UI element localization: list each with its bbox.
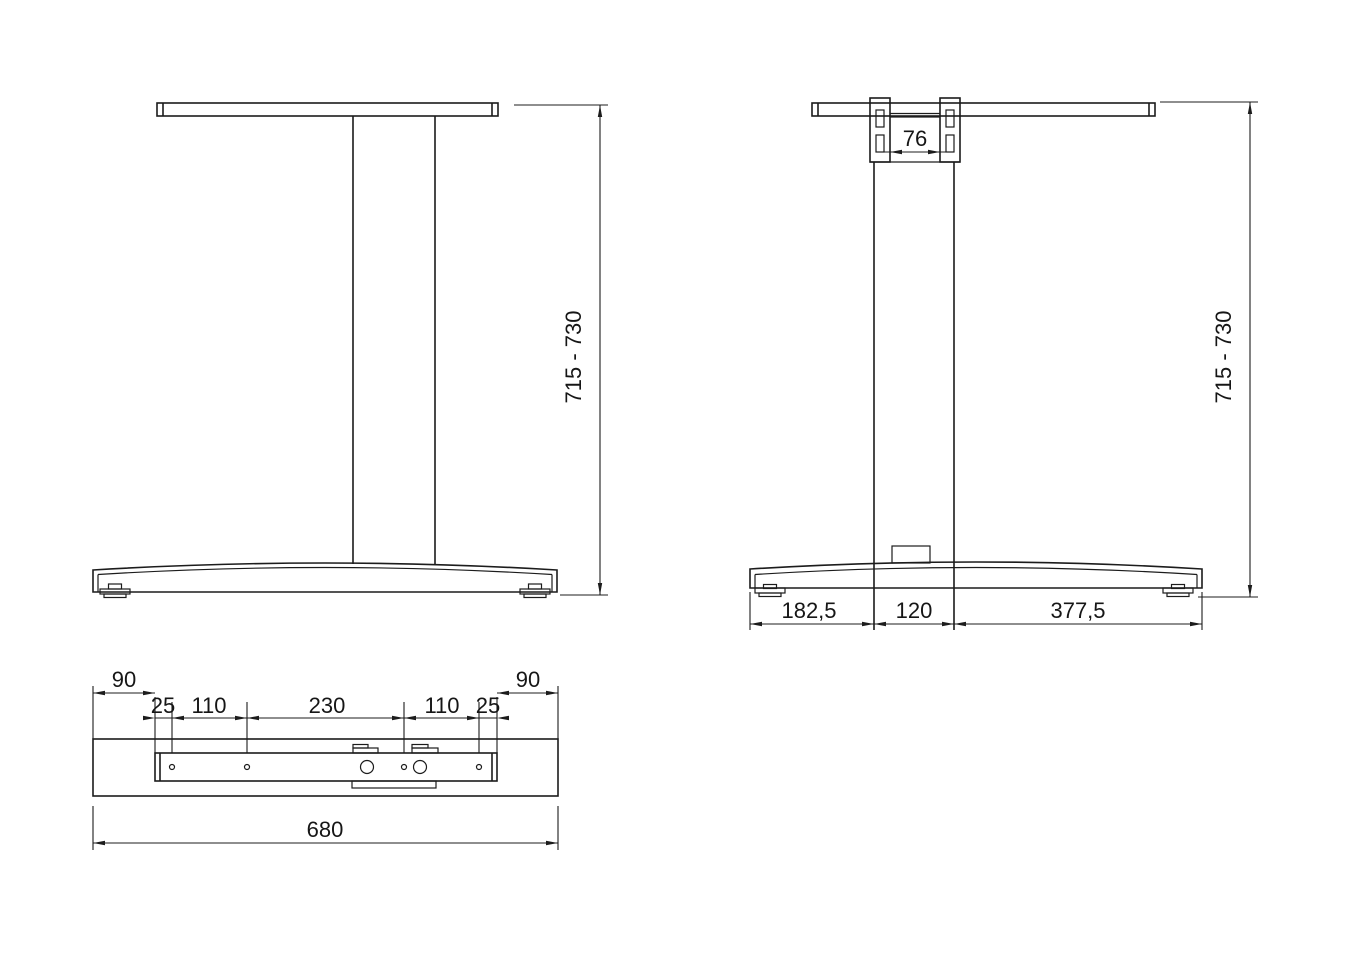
side-foot-rear bbox=[1163, 585, 1193, 597]
side-base-inner-lip bbox=[755, 568, 1197, 589]
side-base-dimensions: 182,5 120 377,5 bbox=[750, 592, 1202, 630]
side-bracket-slot bbox=[876, 110, 884, 127]
top-base-outline bbox=[93, 739, 558, 796]
side-bracket-dimension: 76 bbox=[881, 126, 949, 154]
large-hole bbox=[414, 761, 427, 774]
screw-hole bbox=[402, 765, 407, 770]
front-view: 715 - 730 bbox=[93, 103, 608, 598]
screw-hole bbox=[245, 765, 250, 770]
side-foot-front-label: 182,5 bbox=[781, 598, 836, 623]
screw-hole bbox=[170, 765, 175, 770]
top-chain-label-5: 25 bbox=[476, 693, 500, 718]
top-plate-endcaps bbox=[160, 753, 492, 781]
side-bracket-slot bbox=[876, 135, 884, 152]
side-bracket-slot bbox=[946, 110, 954, 127]
top-chain-label-4: 110 bbox=[424, 693, 459, 718]
screw-hole bbox=[477, 765, 482, 770]
top-dim-overall: 680 bbox=[93, 806, 558, 850]
side-bracket-slot bbox=[946, 135, 954, 152]
technical-drawing-page: 715 - 730 76 bbox=[0, 0, 1354, 956]
front-base-inner-lip bbox=[98, 568, 552, 593]
top-dim-left-90: 90 bbox=[93, 667, 155, 753]
top-plate-bar bbox=[155, 753, 497, 781]
front-top-plate-endcaps bbox=[163, 103, 492, 116]
side-top-plate bbox=[812, 103, 1155, 116]
side-foot-front bbox=[755, 585, 785, 597]
side-base bbox=[750, 562, 1202, 588]
top-chain-label-3: 230 bbox=[309, 693, 346, 718]
side-column-base-clip bbox=[892, 546, 930, 563]
side-view: 76 182,5 120 377,5 bbox=[750, 98, 1258, 630]
top-plate-holes bbox=[170, 761, 482, 774]
top-chain-label-1: 25 bbox=[151, 693, 175, 718]
top-chain-label-2: 110 bbox=[191, 693, 226, 718]
top-bracket-tabs bbox=[352, 745, 438, 789]
top-view: 90 90 25 110 230 110 25 bbox=[93, 667, 558, 850]
top-dim-chain: 25 110 230 110 25 bbox=[143, 693, 509, 753]
table-leg-drawing: 715 - 730 76 bbox=[0, 0, 1354, 956]
top-overhang-right-label: 90 bbox=[516, 667, 540, 692]
front-height-label: 715 - 730 bbox=[561, 311, 586, 404]
front-foot-right bbox=[520, 584, 550, 598]
top-dim-right-90: 90 bbox=[497, 667, 558, 753]
top-overall-length-label: 680 bbox=[307, 817, 344, 842]
side-foot-rear-label: 377,5 bbox=[1050, 598, 1105, 623]
front-column bbox=[353, 116, 435, 564]
top-overhang-left-label: 90 bbox=[112, 667, 136, 692]
front-foot-left bbox=[100, 584, 130, 598]
side-column-depth-label: 120 bbox=[896, 598, 933, 623]
side-top-plate-endcaps bbox=[818, 103, 1149, 116]
front-top-plate bbox=[157, 103, 498, 116]
side-height-label: 715 - 730 bbox=[1211, 311, 1236, 404]
large-hole bbox=[361, 761, 374, 774]
side-height-dimension: 715 - 730 bbox=[1160, 102, 1258, 597]
front-height-dimension: 715 - 730 bbox=[514, 105, 608, 595]
side-bracket-width-label: 76 bbox=[903, 126, 927, 151]
side-column bbox=[874, 162, 954, 630]
